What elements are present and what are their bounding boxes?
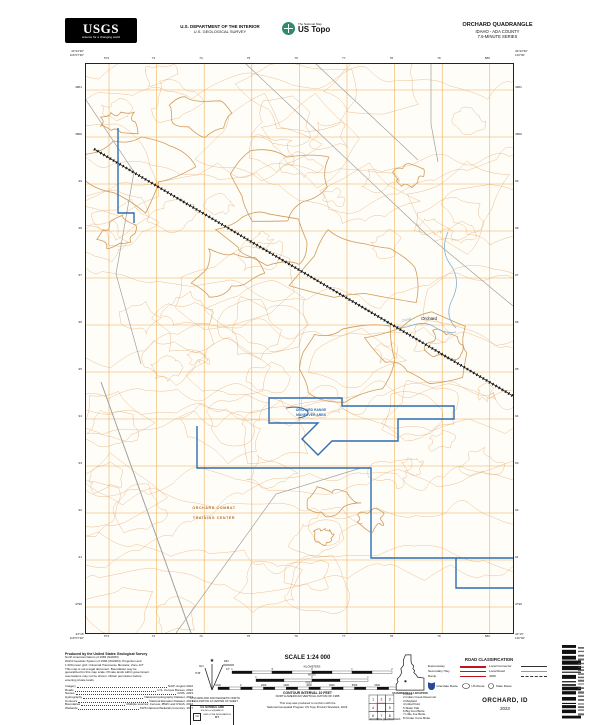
source-name: Wetlands	[65, 707, 77, 711]
adjoining-cell-number: 1	[372, 698, 374, 702]
road-class-swatch	[460, 676, 486, 677]
road-class-swatch	[521, 676, 547, 677]
training-area-label-2: MANEUVER AREA	[296, 413, 326, 417]
grid-label-northing-left: 97	[62, 273, 82, 277]
quadrangle-title-block: ORCHARD QUADRANGLE IDAHO - ADA COUNTY 7.…	[415, 22, 580, 40]
orchard-place-label: Orchard	[421, 316, 437, 321]
route-marker: Interstate Route	[428, 682, 458, 690]
canal-label: Canal	[401, 317, 411, 323]
scale-tick: 1000	[261, 684, 267, 687]
scale-tick: 1	[255, 676, 257, 679]
agency-heading: U.S. DEPARTMENT OF THE INTERIOR U.S. GEO…	[160, 24, 280, 34]
grid-label-easting-bottom: 580	[485, 634, 490, 638]
grid-label-easting-bottom: 74	[199, 634, 202, 638]
grid-label-northing-right: 97	[515, 273, 518, 277]
grid-label-northing-right: 95	[515, 367, 518, 371]
scale-tick: 5000	[352, 684, 358, 687]
sheet-year: 2023	[445, 706, 565, 711]
state-locator-map	[392, 654, 430, 696]
road-class-swatch	[460, 666, 486, 668]
declination-text: GN	[199, 664, 204, 668]
grid-label-easting-top: 75	[247, 56, 250, 60]
route-label: US Route	[471, 684, 484, 688]
scale-unit-label: MILES	[308, 672, 316, 676]
scale-tick: 1000	[215, 684, 221, 687]
adjoining-quad-name: 8 Cinder Cone Butte	[403, 717, 463, 720]
scale-label: SCALE 1:24 000	[240, 655, 375, 661]
grid-label-northing-left: 99	[62, 179, 82, 183]
grid-label-easting-top: 73	[152, 56, 155, 60]
corner-coords-bottom-right: 43°15'116°00'	[515, 633, 555, 640]
data-sources-list: ImageryNAIP, August 2022RoadsU.S. Census…	[65, 685, 193, 711]
route-marker: US Route	[462, 683, 485, 689]
interstate-shield-icon	[428, 682, 435, 690]
us-route-oval-icon	[462, 683, 470, 689]
grid-label-northing-right: 91	[515, 555, 518, 559]
adjoining-cell-number: 3	[389, 698, 391, 702]
grid-label-northing-right: 92	[515, 508, 518, 512]
grid-label-easting-top: 580	[485, 56, 490, 60]
road-class-row: Ramp4WD	[428, 674, 550, 679]
scale-unit-label: FEET	[306, 680, 313, 684]
grid-label-northing-right: 94	[515, 414, 518, 418]
scale-tick: 1	[351, 668, 353, 671]
dotted-leader	[75, 689, 157, 692]
grid-label-northing-left: 92	[62, 508, 82, 512]
quad-location-dot	[405, 680, 407, 682]
dotted-leader	[77, 685, 167, 688]
grid-label-northing-left: 4790	[62, 602, 82, 606]
usgs-topo-sheet: USGS science for a changing world U.S. D…	[0, 0, 600, 725]
credits-text: North American Datum of 1983 (NAD83)Worl…	[65, 656, 193, 682]
route-label: State Route	[496, 684, 512, 688]
adjoining-cell-number: 7	[380, 714, 382, 718]
octc-label-2: TRAINING CENTER	[193, 516, 235, 520]
adjoining-caption: ADJOINING QUADRANGLES	[366, 719, 404, 721]
road-class-swatch	[521, 671, 547, 672]
grid-label-northing-right: 99	[515, 179, 518, 183]
grid-label-easting-top: 74	[199, 56, 202, 60]
grid-label-northing-right: 96	[515, 320, 518, 324]
quadrangle-series: 7.5-MINUTE SERIES	[415, 34, 580, 39]
grid-label-easting-top: 77	[342, 56, 345, 60]
grid-label-northing-right: 93	[515, 461, 518, 465]
corner-coords-top-right: 43°22'30"116°00'	[515, 50, 555, 57]
road-class-label: Ramp	[428, 674, 457, 679]
sheet-name: ORCHARD, ID	[445, 697, 565, 704]
corner-coords-top-left: 43°22'30"116°07'30"	[44, 50, 84, 57]
source-row: WetlandsFWS National Wetlands Inventory,…	[65, 707, 193, 711]
national-map-icon	[282, 22, 295, 35]
ustopo-label: US Topo	[298, 26, 330, 34]
grid-label-northing-right: 4790	[515, 602, 522, 606]
grid-label-easting-top: 572	[104, 56, 109, 60]
route-marker: State Route	[488, 683, 511, 689]
road-class-swatch	[460, 671, 486, 672]
dotted-leader	[81, 703, 125, 706]
scale-tick: 1	[367, 676, 369, 679]
ustopo-logo: The National Map US Topo	[282, 22, 330, 35]
usgs-logo-text: USGS	[83, 22, 119, 35]
state-route-circle-icon	[488, 683, 494, 689]
grid-label-northing-left: 96	[62, 320, 82, 324]
source-value: FWS National Wetlands Inventory, 1977	[140, 707, 193, 711]
scale-tick: 0	[240, 684, 242, 687]
scale-tick: 2000	[283, 684, 289, 687]
grid-label-northing-right: 98	[515, 226, 518, 230]
declination-text: 0°46'	[195, 672, 201, 675]
grid-label-easting-top: 76	[294, 56, 297, 60]
scale-tick: 0	[311, 668, 313, 671]
road-class-swatch	[521, 666, 547, 667]
scale-tick: 0	[311, 676, 313, 679]
scale-tick: 3000	[306, 684, 312, 687]
adjoining-cell-number: 4	[372, 706, 374, 710]
credits-line: entering private lands.	[65, 679, 193, 683]
grid-label-northing-left: 91	[62, 555, 82, 559]
road-class-label: 4WD	[489, 674, 518, 679]
grid-label-easting-bottom: 77	[342, 634, 345, 638]
grid-label-easting-bottom: 73	[152, 634, 155, 638]
grid-label-northing-left: 4800	[62, 132, 82, 136]
grid-label-easting-bottom: 76	[294, 634, 297, 638]
grid-label-northing-left: 93	[62, 461, 82, 465]
usng-zone: 11T	[203, 717, 231, 720]
grid-label-easting-bottom: 75	[247, 634, 250, 638]
grid-label-northing-left: 4801	[62, 85, 82, 89]
scale-tick: .5	[271, 668, 274, 671]
adjoining-cell-number: 5	[389, 706, 391, 710]
adjoining-cell-number: 6	[372, 714, 374, 718]
scale-tick: 4000	[329, 684, 335, 687]
route-label: Interstate Route	[437, 684, 458, 688]
scale-tick: 1	[231, 668, 233, 671]
topographic-map: CanalOrchardORCHARD RANGEMANEUVER AREAOR…	[86, 64, 513, 633]
scale-unit-label: KILOMETERS	[304, 664, 321, 668]
product-standard-note: This map was produced to conform with th…	[225, 702, 390, 709]
scale-tick: 6000	[374, 684, 380, 687]
road-classification-title: ROAD CLASSIFICATION	[428, 657, 550, 662]
production-credits: Produced by the United States Geological…	[65, 652, 193, 711]
metadata-barcode	[562, 645, 586, 724]
grid-label-easting-bottom: 572	[104, 634, 109, 638]
grid-label-northing-right: 4800	[515, 132, 522, 136]
grid-label-northing-left: 94	[62, 414, 82, 418]
grid-label-easting-top: 79	[437, 56, 440, 60]
road-classification-legend: ROAD CLASSIFICATION ExpresswayLocal Conn…	[428, 657, 550, 690]
dotted-leader	[83, 696, 143, 699]
usgs-logo: USGS science for a changing world	[65, 18, 137, 43]
grid-label-easting-top: 78	[390, 56, 393, 60]
training-area-label-1: ORCHARD RANGE	[296, 408, 327, 412]
dotted-leader	[78, 707, 138, 710]
usgs-tagline: science for a changing world	[82, 35, 120, 39]
sheet-title-block: ORCHARD, ID 2023	[445, 697, 565, 711]
adjoining-cell-number: 8	[389, 714, 391, 718]
grid-label-northing-left: 95	[62, 367, 82, 371]
grid-label-easting-bottom: 78	[390, 634, 393, 638]
map-area: CanalOrchardORCHARD RANGEMANEUVER AREAOR…	[85, 63, 514, 634]
grid-label-northing-right: 4801	[515, 85, 522, 89]
corner-coords-bottom-left: 43°15'116°07'30"	[44, 633, 84, 640]
quadrangle-title: ORCHARD QUADRANGLE	[415, 22, 580, 29]
grid-label-easting-bottom: 79	[437, 634, 440, 638]
grid-label-northing-left: 98	[62, 226, 82, 230]
adjoining-cell-number: 2	[380, 698, 382, 702]
usng-square-id: NJ	[193, 713, 201, 721]
contour-interval-note: CONTOUR INTERVAL 10 FEET NORTH AMERICAN …	[225, 691, 390, 699]
survey-line: U.S. GEOLOGICAL SURVEY	[160, 29, 280, 34]
octc-label-1: ORCHARD COMBAT	[192, 506, 235, 510]
